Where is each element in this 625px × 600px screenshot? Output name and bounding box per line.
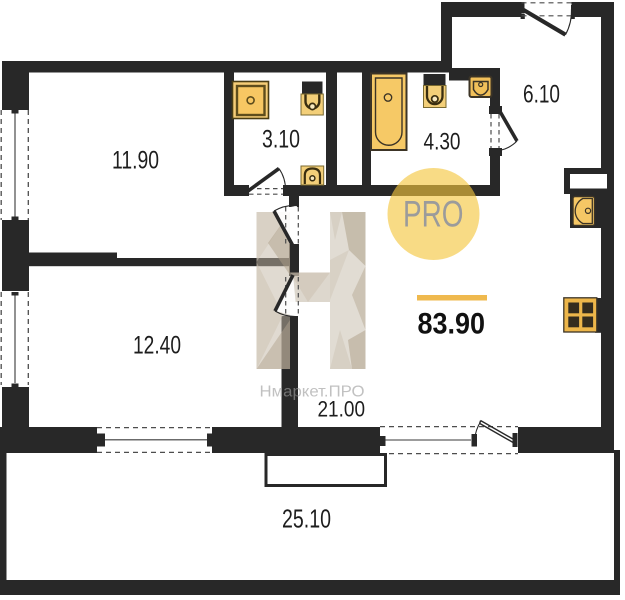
svg-text:6.10: 6.10 [523,81,560,109]
svg-text:12.40: 12.40 [133,332,181,360]
svg-text:25.10: 25.10 [282,504,331,534]
svg-text:83.90: 83.90 [418,308,486,341]
svg-text:3.10: 3.10 [262,126,300,154]
svg-text:21.00: 21.00 [318,397,366,422]
svg-text:11.90: 11.90 [112,147,159,175]
svg-text:4.30: 4.30 [424,129,461,156]
svg-text:PRO: PRO [403,194,464,235]
